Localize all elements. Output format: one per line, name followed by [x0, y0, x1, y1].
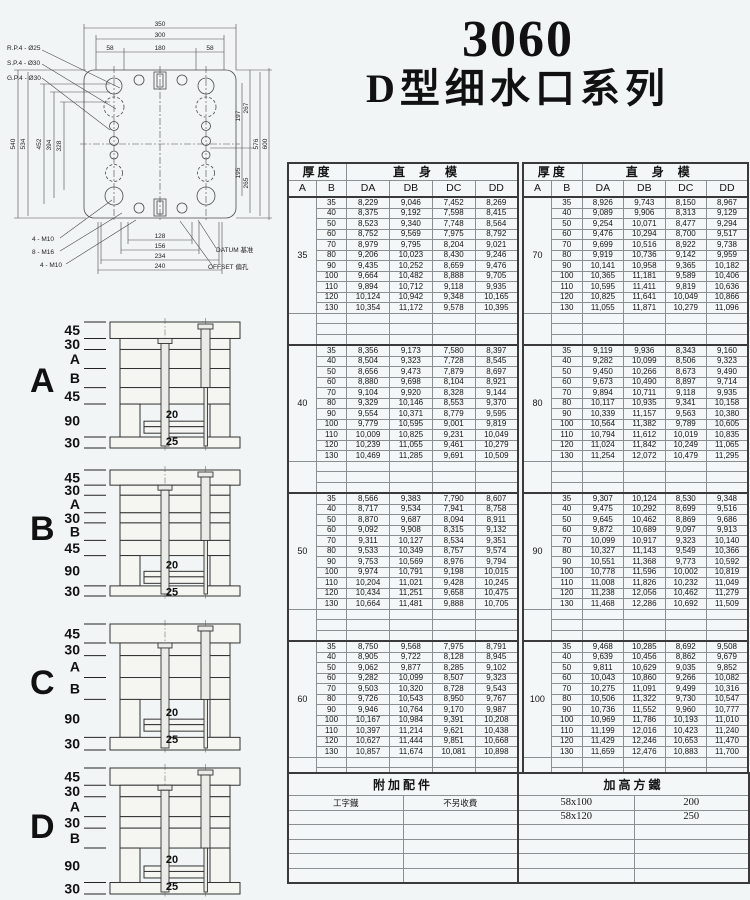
empty-cell [551, 334, 582, 345]
screw [204, 848, 208, 892]
price-value: 9,246 [475, 250, 518, 261]
dim-197: 197 [235, 110, 242, 121]
thickness-b-value: 70 [316, 684, 346, 695]
table-row: 509,45010,2668,6739,490 [523, 367, 748, 378]
table-row: 609,28210,0998,5079,323 [288, 673, 518, 684]
table-row: 13011,25412,07210,47911,295 [523, 451, 748, 462]
price-value: 12,016 [624, 726, 665, 737]
spacer-row [523, 620, 748, 631]
price-value: 11,659 [582, 747, 623, 758]
dim-156: 156 [155, 243, 166, 250]
table-row: 11010,20411,0219,42810,245 [288, 578, 518, 589]
table-row: 909,43510,2528,6599,476 [288, 261, 518, 272]
thickness-b-value: 130 [551, 747, 582, 758]
price-value: 9,779 [347, 419, 390, 430]
page-title: 3060 D型细水口系列 [292, 14, 744, 112]
empty-cell [706, 620, 748, 631]
thickness-b-value: 50 [551, 663, 582, 674]
price-value: 11,786 [624, 715, 665, 726]
empty-cell [432, 609, 475, 620]
price-value: 8,150 [665, 197, 706, 208]
price-value: 9,351 [475, 536, 518, 547]
thickness-b-value: 60 [551, 673, 582, 684]
price-value: 10,182 [706, 261, 748, 272]
empty-cell [288, 868, 403, 883]
table-row: 11011,19912,01610,42311,240 [523, 726, 748, 737]
price-value: 10,509 [475, 451, 518, 462]
price-value: 11,368 [624, 557, 665, 568]
spacer-row [288, 630, 518, 641]
price-value: 11,322 [624, 694, 665, 705]
thickness-b-value: 35 [316, 197, 346, 208]
price-value: 7,975 [432, 229, 475, 240]
ejector-pin [161, 648, 169, 748]
band-label-90: 90 [64, 413, 80, 429]
price-value: 10,592 [706, 557, 748, 568]
thickness-header: 厚度 [288, 163, 347, 181]
price-value: 11,181 [624, 271, 665, 282]
empty-cell [316, 324, 346, 335]
price-value: 10,462 [665, 588, 706, 599]
price-value: 10,564 [582, 419, 623, 430]
empty-cell [624, 313, 665, 324]
thickness-b-value: 60 [316, 673, 346, 684]
price-value: 9,118 [665, 388, 706, 399]
price-value: 10,127 [389, 536, 432, 547]
mold-plate [120, 797, 230, 817]
empty-cell [432, 757, 475, 768]
empty-cell [582, 313, 623, 324]
price-value: 12,286 [624, 599, 665, 610]
empty-cell [523, 609, 551, 641]
thickness-b-value: 120 [551, 440, 582, 451]
thickness-b-value: 110 [316, 430, 346, 441]
thickness-b-value: 100 [316, 419, 346, 430]
table-row: 12011,02411,84210,24911,065 [523, 440, 748, 451]
band-label-90: 90 [64, 710, 80, 726]
price-value: 8,128 [432, 652, 475, 663]
price-value: 8,911 [475, 515, 518, 526]
table-row: 10010,36511,1819,58910,406 [523, 271, 748, 282]
empty-cell [432, 313, 475, 324]
price-value: 9,348 [706, 493, 748, 504]
spacer-row [288, 334, 518, 345]
empty-cell [706, 324, 748, 335]
table-row: 408,9059,7228,1288,945 [288, 652, 518, 663]
ejector-retainer-plate [144, 571, 206, 577]
price-value: 11,470 [706, 736, 748, 747]
table-row: 13010,46911,2859,69110,509 [288, 451, 518, 462]
price-value: 9,908 [389, 525, 432, 536]
table-row: 1009,97410,7919,19810,015 [288, 567, 518, 578]
dim-58-left: 58 [106, 45, 114, 52]
mold-plate [110, 322, 240, 338]
label-4m10-a: 4 - M10 [32, 236, 54, 243]
dim-600: 600 [262, 138, 269, 149]
price-value: 10,208 [475, 715, 518, 726]
riser-price: 200 [634, 796, 749, 811]
table-row: 9010,55111,3689,77310,592 [523, 557, 748, 568]
thickness-b-value: 50 [316, 367, 346, 378]
table-row: 409,28210,0998,5069,323 [523, 356, 748, 367]
table-row: 809,53310,3498,7579,574 [288, 546, 518, 557]
empty-cell [316, 472, 346, 483]
price-value: 8,976 [432, 557, 475, 568]
price-value: 11,871 [624, 303, 665, 314]
thickness-b-value: 110 [551, 726, 582, 737]
inner-dim-25: 25 [166, 436, 178, 448]
table-row: 12011,42912,24610,65311,470 [523, 736, 748, 747]
price-value: 11,055 [582, 303, 623, 314]
table-row: 10010,77811,59610,00210,819 [523, 567, 748, 578]
table-row: 909,55410,3718,7799,595 [288, 409, 518, 420]
label-8m16: 8 - M16 [32, 249, 54, 256]
table-row: 9010,73611,5529,96010,777 [523, 705, 748, 716]
price-value: 9,621 [432, 726, 475, 737]
empty-cell [706, 482, 748, 493]
series-number: 3060 [292, 14, 744, 66]
dim-394: 394 [46, 139, 53, 150]
price-value: 10,627 [347, 736, 390, 747]
thickness-b-value: 120 [551, 736, 582, 747]
empty-cell [582, 472, 623, 483]
table-row: 7010,27511,0919,49910,316 [523, 684, 748, 695]
thickness-a-value: 70 [523, 197, 551, 313]
price-value: 9,819 [665, 282, 706, 293]
price-value: 8,343 [665, 345, 706, 356]
table-row: 1009,77910,5959,0019,819 [288, 419, 518, 430]
price-value: 10,423 [665, 726, 706, 737]
thickness-b-value: 35 [551, 493, 582, 504]
column-header-A: A [288, 181, 316, 198]
price-value: 9,935 [475, 282, 518, 293]
price-value: 10,099 [624, 356, 665, 367]
band-label-30: 30 [64, 814, 80, 830]
price-value: 9,476 [475, 261, 518, 272]
price-value: 10,712 [389, 282, 432, 293]
empty-cell [389, 609, 432, 620]
price-value: 10,653 [665, 736, 706, 747]
empty-cell [624, 757, 665, 768]
column-header-DD: DD [706, 181, 748, 198]
price-value: 10,140 [706, 536, 748, 547]
table-row: 709,50310,3208,7289,543 [288, 684, 518, 695]
table-row: 709,1049,9208,3289,144 [288, 388, 518, 399]
price-value: 10,917 [624, 536, 665, 547]
inner-dim-25: 25 [166, 881, 178, 893]
price-value: 12,072 [624, 451, 665, 462]
price-value: 9,753 [347, 557, 390, 568]
price-value: 8,870 [347, 515, 390, 526]
spacer-block [120, 848, 140, 882]
empty-cell [551, 609, 582, 620]
guide-pin-head [198, 770, 213, 775]
dim-234: 234 [155, 253, 166, 260]
price-value: 10,860 [624, 673, 665, 684]
empty-cell [403, 825, 518, 840]
mold-plate [120, 656, 230, 678]
price-value: 10,438 [475, 726, 518, 737]
spacer-row [523, 757, 748, 768]
table-row: 508,5239,3407,7488,564 [288, 219, 518, 230]
price-value: 9,698 [389, 377, 432, 388]
inner-dim-20: 20 [166, 409, 178, 421]
empty-cell [389, 472, 432, 483]
thickness-b-value: 60 [551, 229, 582, 240]
price-value: 10,380 [706, 409, 748, 420]
empty-cell [288, 609, 316, 641]
guide-pin-head [198, 626, 213, 631]
thickness-b-value: 90 [316, 261, 346, 272]
thickness-b-value: 80 [551, 546, 582, 557]
label-rp: R.P.4 - Ø25 [7, 45, 41, 52]
price-value: 8,926 [582, 197, 623, 208]
price-value: 11,285 [389, 451, 432, 462]
mold-plate [120, 338, 230, 349]
price-value: 11,700 [706, 747, 748, 758]
dim-300: 300 [155, 32, 166, 39]
price-value: 10,736 [624, 250, 665, 261]
table-row: 12010,43411,2519,65810,475 [288, 588, 518, 599]
thickness-b-value: 90 [551, 557, 582, 568]
price-value: 9,705 [475, 271, 518, 282]
price-value: 7,598 [432, 208, 475, 219]
price-value: 10,279 [665, 303, 706, 314]
empty-cell [582, 620, 623, 631]
empty-cell [389, 334, 432, 345]
table-row: 13010,35411,1729,57810,395 [288, 303, 518, 314]
price-value: 9,852 [706, 663, 748, 674]
price-value: 11,481 [389, 599, 432, 610]
thickness-a-value: 80 [523, 345, 551, 461]
spacer-row [288, 482, 518, 493]
mold-plate [120, 643, 230, 656]
table-row: 809,72610,5438,9509,767 [288, 694, 518, 705]
thickness-b-value: 100 [551, 271, 582, 282]
price-value: 9,132 [475, 525, 518, 536]
price-value: 11,143 [624, 546, 665, 557]
price-value: 10,475 [475, 588, 518, 599]
price-value: 9,543 [475, 684, 518, 695]
empty-cell [582, 334, 623, 345]
price-value: 8,523 [347, 219, 390, 230]
price-value: 9,563 [665, 409, 706, 420]
price-value: 11,842 [624, 440, 665, 451]
price-value: 9,568 [389, 641, 432, 652]
price-value: 10,049 [665, 292, 706, 303]
price-value: 10,320 [389, 684, 432, 695]
price-value: 10,316 [706, 684, 748, 695]
price-value: 9,533 [347, 546, 390, 557]
spacer-row [523, 609, 748, 620]
price-value: 11,008 [582, 578, 623, 589]
spacer-row [523, 630, 748, 641]
price-value: 10,791 [389, 567, 432, 578]
price-value: 9,872 [582, 525, 623, 536]
ejector-retainer-plate [144, 421, 206, 427]
empty-cell [347, 472, 390, 483]
price-value: 9,569 [389, 229, 432, 240]
catalog-page: 350 300 58 180 58 128 156 234 240 540 53… [0, 0, 750, 900]
empty-cell [389, 757, 432, 768]
dim-267: 267 [243, 102, 250, 113]
price-value: 9,726 [347, 694, 390, 705]
table-row: 10010,16710,9849,39110,208 [288, 715, 518, 726]
thickness-b-value: 40 [316, 208, 346, 219]
price-value: 8,921 [475, 377, 518, 388]
price-value: 10,605 [706, 419, 748, 430]
thickness-b-value: 40 [316, 356, 346, 367]
price-value: 9,894 [347, 282, 390, 293]
empty-cell [582, 324, 623, 335]
empty-cell [624, 472, 665, 483]
dim-540: 540 [10, 138, 17, 149]
thickness-b-value: 35 [551, 345, 582, 356]
price-value: 8,566 [347, 493, 390, 504]
price-value: 11,024 [582, 440, 623, 451]
spacer-row [288, 757, 518, 768]
thickness-b-value: 40 [551, 652, 582, 663]
empty-cell [316, 313, 346, 324]
sprue-bush-head [158, 338, 172, 343]
price-value: 11,295 [706, 451, 748, 462]
price-value: 9,795 [389, 240, 432, 251]
price-value: 8,269 [475, 197, 518, 208]
straight-mold-header: 直身模 [347, 163, 518, 181]
price-value: 8,415 [475, 208, 518, 219]
empty-cell [475, 630, 518, 641]
price-value: 7,748 [432, 219, 475, 230]
mold-plate [120, 828, 230, 848]
band-label-B: B [70, 680, 80, 696]
price-value: 8,950 [432, 694, 475, 705]
price-value: 9,773 [665, 557, 706, 568]
table-row: 709,69910,5168,9229,738 [523, 240, 748, 251]
empty-cell [582, 461, 623, 472]
price-value: 9,329 [347, 398, 390, 409]
accessory-note: 不另收費 [403, 796, 518, 811]
price-table-left: 厚度直身模ABDADBDCDD35358,2299,0467,4528,2694… [287, 162, 519, 801]
price-value: 10,506 [582, 694, 623, 705]
column-header-A: A [523, 181, 551, 198]
thickness-b-value: 35 [551, 197, 582, 208]
thickness-b-value: 90 [551, 409, 582, 420]
ejector-pin [161, 343, 169, 446]
thickness-b-value: 60 [551, 377, 582, 388]
price-value: 10,124 [624, 493, 665, 504]
empty-cell [624, 630, 665, 641]
price-value: 8,313 [665, 208, 706, 219]
table-row: 100359,46810,2858,6929,508 [523, 641, 748, 652]
table-row: 11010,59511,4119,81910,636 [523, 282, 748, 293]
thickness-b-value: 80 [551, 250, 582, 261]
price-value: 10,167 [347, 715, 390, 726]
table-row: 509,25410,0718,4779,294 [523, 219, 748, 230]
price-value: 11,382 [624, 419, 665, 430]
table-row: 13010,85711,67410,08110,898 [288, 747, 518, 758]
empty-cell [523, 461, 551, 493]
price-value: 11,157 [624, 409, 665, 420]
thickness-b-value: 110 [316, 726, 346, 737]
thickness-a-value: 40 [288, 345, 316, 461]
thickness-b-value: 40 [551, 208, 582, 219]
thickness-b-value: 40 [316, 504, 346, 515]
price-value: 11,096 [706, 303, 748, 314]
mold-plate [120, 388, 230, 404]
table-row: 13011,46812,28610,69211,509 [523, 599, 748, 610]
price-value: 10,099 [389, 673, 432, 684]
price-value: 10,547 [706, 694, 748, 705]
price-value: 10,023 [389, 250, 432, 261]
price-value: 9,311 [347, 536, 390, 547]
thickness-b-value: 80 [316, 546, 346, 557]
spacer-row [288, 472, 518, 483]
price-value: 10,543 [389, 694, 432, 705]
price-value: 9,851 [432, 736, 475, 747]
thickness-b-value: 40 [551, 504, 582, 515]
price-value: 9,959 [706, 250, 748, 261]
price-value: 8,553 [432, 398, 475, 409]
sprue-bush-head [158, 643, 172, 648]
price-value: 8,430 [432, 250, 475, 261]
thickness-b-value: 120 [551, 292, 582, 303]
empty-cell [475, 757, 518, 768]
riser-price: 250 [634, 810, 749, 825]
thickness-b-value: 130 [316, 599, 346, 610]
price-value: 11,065 [706, 440, 748, 451]
price-value: 10,015 [475, 567, 518, 578]
price-value: 9,144 [475, 388, 518, 399]
price-value: 10,883 [665, 747, 706, 758]
price-value: 8,545 [475, 356, 518, 367]
price-value: 9,104 [347, 388, 390, 399]
price-value: 11,444 [389, 736, 432, 747]
spacer-block [210, 699, 230, 737]
band-label-B: B [70, 830, 80, 846]
price-value: 8,285 [432, 663, 475, 674]
empty-cell [665, 757, 706, 768]
spacer-row [523, 324, 748, 335]
table-row: 909,75310,5698,9769,794 [288, 557, 518, 568]
thickness-b-value: 110 [316, 282, 346, 293]
mold-plate [120, 817, 230, 828]
price-value: 10,245 [475, 578, 518, 589]
price-value: 8,897 [665, 377, 706, 388]
table-row: 35358,2299,0467,4528,269 [288, 197, 518, 208]
price-value: 9,473 [389, 367, 432, 378]
price-value: 8,750 [347, 641, 390, 652]
price-value: 9,192 [389, 208, 432, 219]
dim-128: 128 [155, 233, 166, 240]
price-value: 10,668 [475, 736, 518, 747]
thickness-b-value: 35 [316, 345, 346, 356]
price-value: 9,517 [706, 229, 748, 240]
thickness-b-value: 60 [316, 525, 346, 536]
thickness-b-value: 70 [551, 684, 582, 695]
empty-cell [518, 854, 634, 869]
band-label-30: 30 [64, 880, 80, 896]
thickness-b-value: 50 [551, 515, 582, 526]
empty-cell [518, 868, 634, 883]
empty-cell [403, 810, 518, 825]
accessory-table: 附加配件 加高方鐵 工字鐡 不另收費 58x100 200 58x120 250 [287, 772, 750, 884]
empty-cell [432, 472, 475, 483]
price-value: 8,530 [665, 493, 706, 504]
thickness-b-value: 70 [316, 388, 346, 399]
thickness-b-value: 90 [316, 409, 346, 420]
screw [204, 699, 208, 748]
spacer-row [288, 313, 518, 324]
